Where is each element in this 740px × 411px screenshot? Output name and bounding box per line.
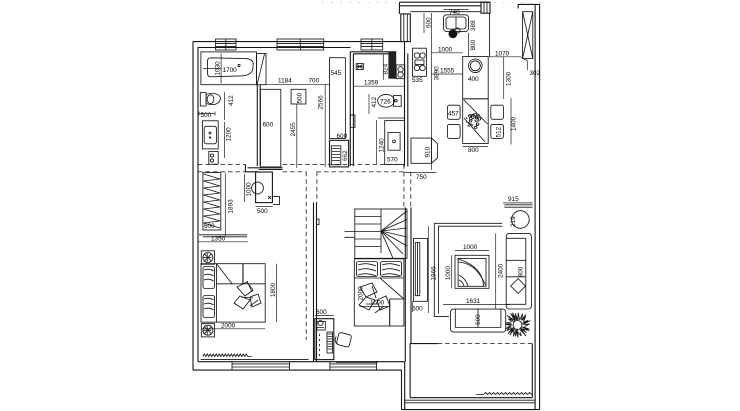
svg-text:1631: 1631	[466, 298, 481, 305]
svg-text:1240: 1240	[378, 138, 385, 153]
svg-text:1893: 1893	[227, 199, 234, 214]
svg-text:500: 500	[297, 92, 304, 103]
svg-text:910: 910	[425, 146, 432, 157]
svg-text:1184: 1184	[278, 78, 292, 85]
svg-text:1000: 1000	[438, 46, 453, 53]
svg-text:2000: 2000	[358, 286, 365, 301]
svg-text:600: 600	[263, 122, 274, 129]
svg-text:726: 726	[380, 98, 391, 105]
svg-text:1700: 1700	[223, 67, 238, 74]
svg-text:500: 500	[257, 208, 268, 215]
svg-text:700: 700	[309, 78, 320, 85]
svg-text:1555: 1555	[440, 68, 455, 75]
svg-text:1359: 1359	[364, 80, 379, 87]
svg-text:2455: 2455	[290, 122, 297, 137]
svg-text:570: 570	[387, 157, 398, 164]
svg-text:1400: 1400	[510, 116, 517, 131]
svg-text:800: 800	[518, 266, 525, 277]
svg-text:1800: 1800	[270, 282, 277, 297]
svg-text:400: 400	[468, 76, 479, 83]
svg-text:545: 545	[331, 70, 342, 77]
svg-text:· · · · · · · · · · · · · · ·: · · · · · · · · · · · · · · · · · · · · …	[322, 0, 544, 6]
svg-text:1300: 1300	[506, 71, 513, 86]
svg-text:1500: 1500	[370, 300, 385, 307]
svg-text:750: 750	[416, 174, 427, 181]
svg-text:2000: 2000	[221, 322, 236, 329]
svg-text:219: 219	[510, 216, 517, 227]
svg-text:600: 600	[475, 314, 482, 325]
svg-text:1966: 1966	[430, 266, 437, 281]
svg-text:1030: 1030	[215, 61, 222, 76]
svg-text:412: 412	[371, 96, 378, 107]
svg-text:800: 800	[470, 39, 477, 50]
svg-text:1200: 1200	[226, 127, 233, 142]
svg-text:600: 600	[316, 309, 327, 316]
svg-text:740: 740	[449, 9, 460, 16]
svg-text:600: 600	[204, 223, 215, 230]
svg-text:412: 412	[228, 95, 235, 106]
svg-text:512: 512	[496, 126, 503, 137]
svg-text:535: 535	[412, 77, 423, 84]
svg-text:915: 915	[508, 196, 519, 203]
svg-text:800: 800	[468, 147, 479, 154]
svg-text:388: 388	[470, 20, 477, 31]
svg-text:1000: 1000	[463, 244, 478, 251]
svg-text:1000: 1000	[445, 266, 452, 281]
svg-text:662: 662	[342, 150, 349, 161]
svg-text:457: 457	[448, 111, 459, 118]
svg-text:1070: 1070	[495, 50, 510, 57]
svg-text:2400: 2400	[498, 263, 505, 278]
svg-text:302: 302	[530, 70, 541, 77]
svg-text:1350: 1350	[211, 236, 226, 243]
svg-text:1000: 1000	[245, 182, 252, 197]
svg-text:500: 500	[412, 306, 423, 313]
svg-text:600: 600	[337, 133, 348, 140]
svg-text:2566: 2566	[318, 95, 325, 110]
